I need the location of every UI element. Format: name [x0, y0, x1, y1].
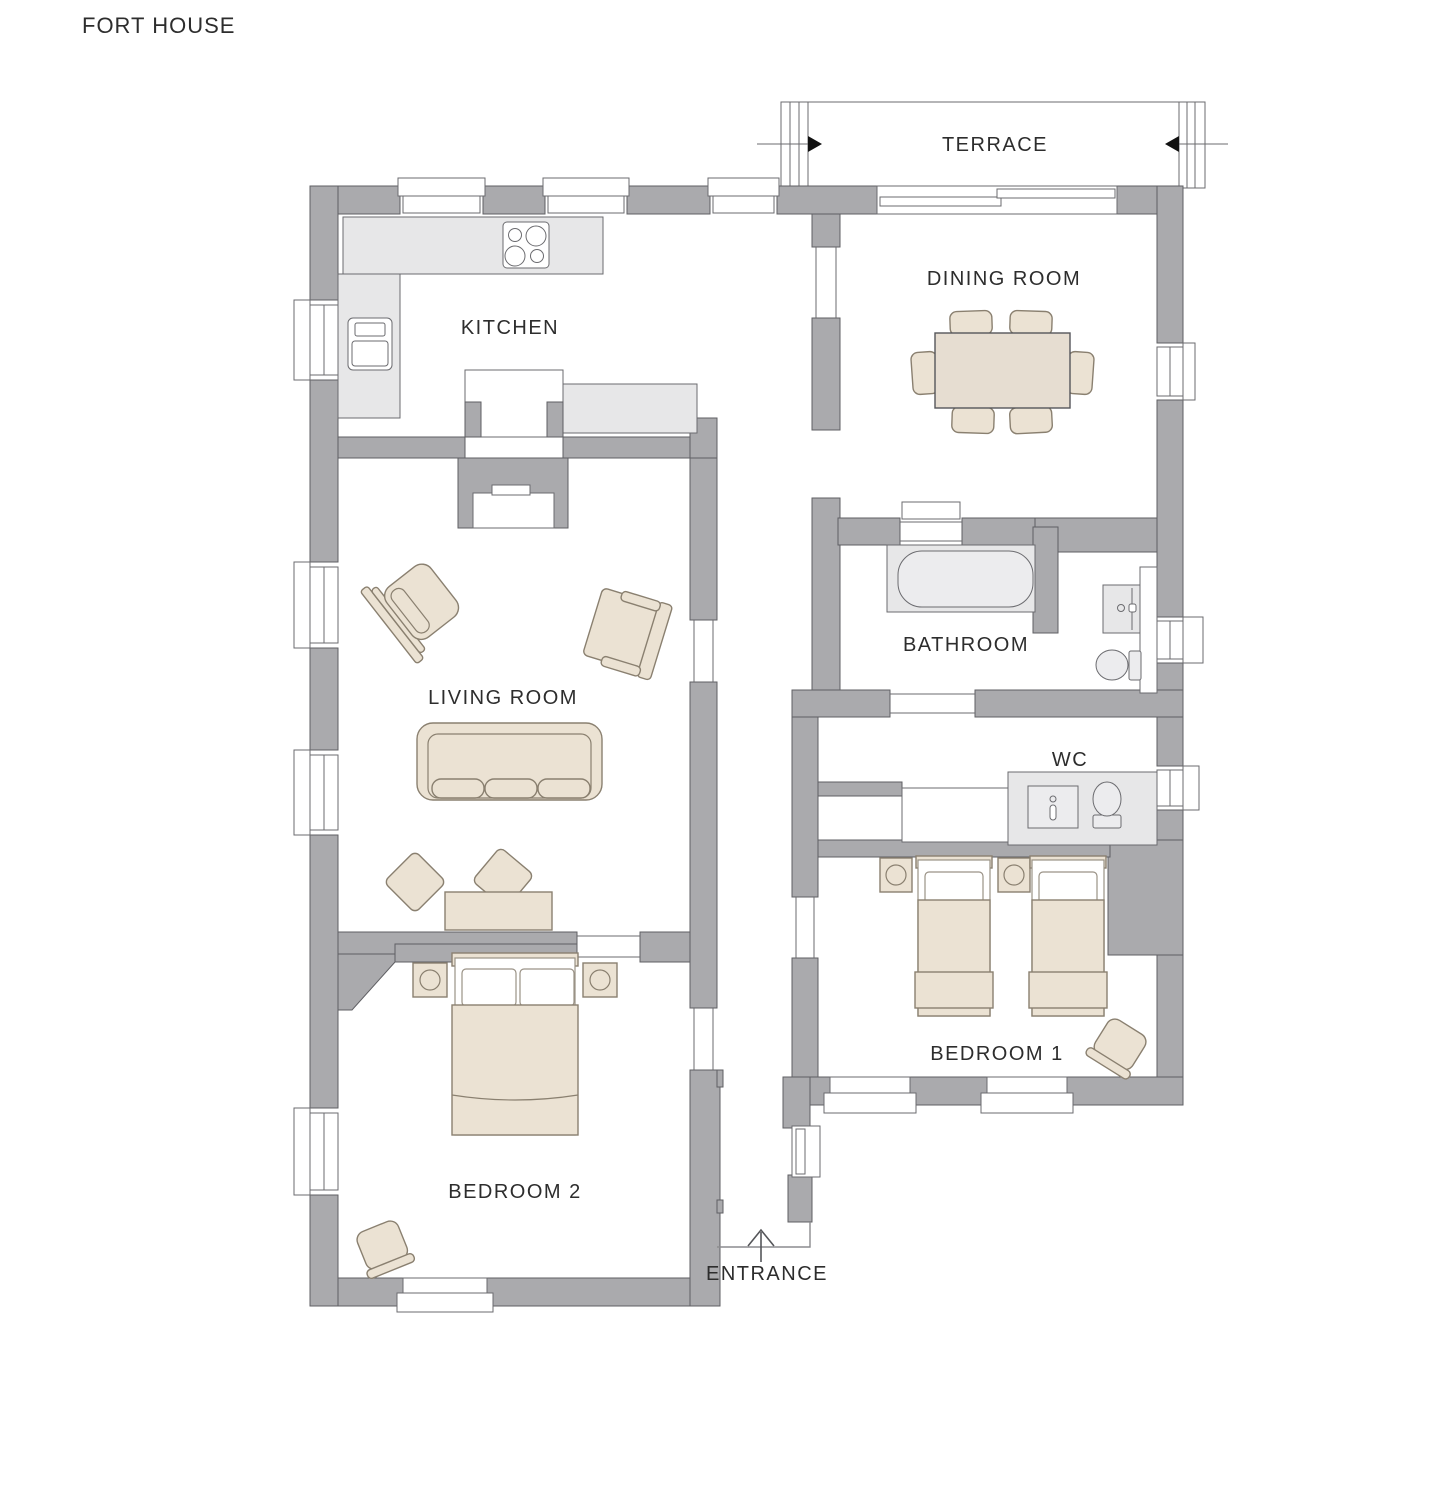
living-room-furniture: [360, 548, 673, 930]
window: [543, 178, 629, 213]
wc-toilet-icon: [1093, 782, 1121, 828]
room-label-kitchen: KITCHEN: [461, 317, 559, 339]
terrace-arrow-left-icon: [808, 136, 822, 152]
floor-plan-canvas: FORT HOUSE TERRACE DINING ROOM KITCHEN B…: [0, 0, 1431, 1494]
dining-chair: [952, 406, 995, 433]
window: [397, 1278, 493, 1312]
wc-fixtures: [902, 772, 1157, 845]
room-label-dining: DINING ROOM: [927, 268, 1081, 290]
door-opening: [694, 620, 713, 682]
window: [1157, 343, 1195, 400]
nightstand: [583, 963, 617, 997]
room-label-bedroom2: BEDROOM 2: [448, 1181, 582, 1203]
window: [398, 178, 485, 213]
armchair: [581, 585, 673, 681]
sliding-door: [877, 186, 1117, 214]
window: [708, 178, 779, 213]
room-label-bathroom: BATHROOM: [903, 634, 1029, 656]
terrace-right-post: [1179, 102, 1205, 188]
door-opening: [796, 897, 814, 958]
room-label-entrance: ENTRANCE: [706, 1263, 828, 1285]
door-opening: [816, 247, 836, 318]
bathroom-toilet-icon: [1096, 650, 1141, 680]
armchair: [360, 548, 472, 664]
dining-table: [935, 333, 1070, 408]
dining-chair: [1010, 310, 1053, 335]
ottoman: [384, 851, 446, 913]
single-bed: [915, 856, 993, 1016]
bathroom-partition: [1140, 567, 1157, 693]
door-opening: [577, 936, 640, 957]
double-bed: [452, 953, 578, 1135]
sofa: [417, 723, 602, 800]
front-door: [792, 1126, 820, 1177]
chair: [352, 1217, 416, 1279]
room-label-living: LIVING ROOM: [428, 687, 578, 709]
bathtub-icon: [898, 551, 1033, 607]
dining-chair: [950, 310, 993, 335]
room-label-bedroom1: BEDROOM 1: [930, 1043, 1064, 1065]
kitchen-sink-icon: [348, 318, 392, 370]
single-bed: [1029, 856, 1107, 1016]
entrance-arrow-icon: [748, 1230, 774, 1262]
window: [981, 1077, 1073, 1113]
bathroom-fixtures: [887, 545, 1157, 693]
door-opening: [890, 694, 975, 713]
dining-chair: [1009, 406, 1052, 434]
door-opening: [900, 502, 962, 541]
floor-plan-page: FORT HOUSE TERRACE DINING ROOM KITCHEN B…: [0, 0, 1431, 1494]
dining-furniture: [911, 310, 1095, 434]
window: [294, 300, 338, 380]
kitchen-counter-top: [343, 217, 603, 274]
kitchen-counter-lower: [563, 384, 697, 433]
coffee-table: [445, 892, 552, 930]
nightstand: [413, 963, 447, 997]
terrace-arrow-right-icon: [1165, 136, 1179, 152]
window: [294, 1108, 338, 1195]
entrance: [717, 1222, 810, 1262]
window: [824, 1077, 916, 1113]
hob-icon: [503, 222, 549, 268]
nightstand: [998, 858, 1030, 892]
nightstand: [880, 858, 912, 892]
wc-sink-icon: [1028, 786, 1078, 828]
window: [294, 562, 338, 648]
door-opening: [694, 1008, 713, 1070]
room-label-wc: WC: [1052, 749, 1088, 771]
bathroom-sink-icon: [1103, 585, 1140, 633]
bedroom2-furniture: [352, 953, 617, 1280]
room-label-terrace: TERRACE: [942, 134, 1048, 156]
page-title: FORT HOUSE: [82, 13, 235, 38]
wc-counter: [902, 788, 1008, 842]
window: [1157, 617, 1203, 663]
chair: [1085, 1014, 1152, 1080]
window: [294, 750, 338, 835]
window: [1157, 766, 1199, 810]
